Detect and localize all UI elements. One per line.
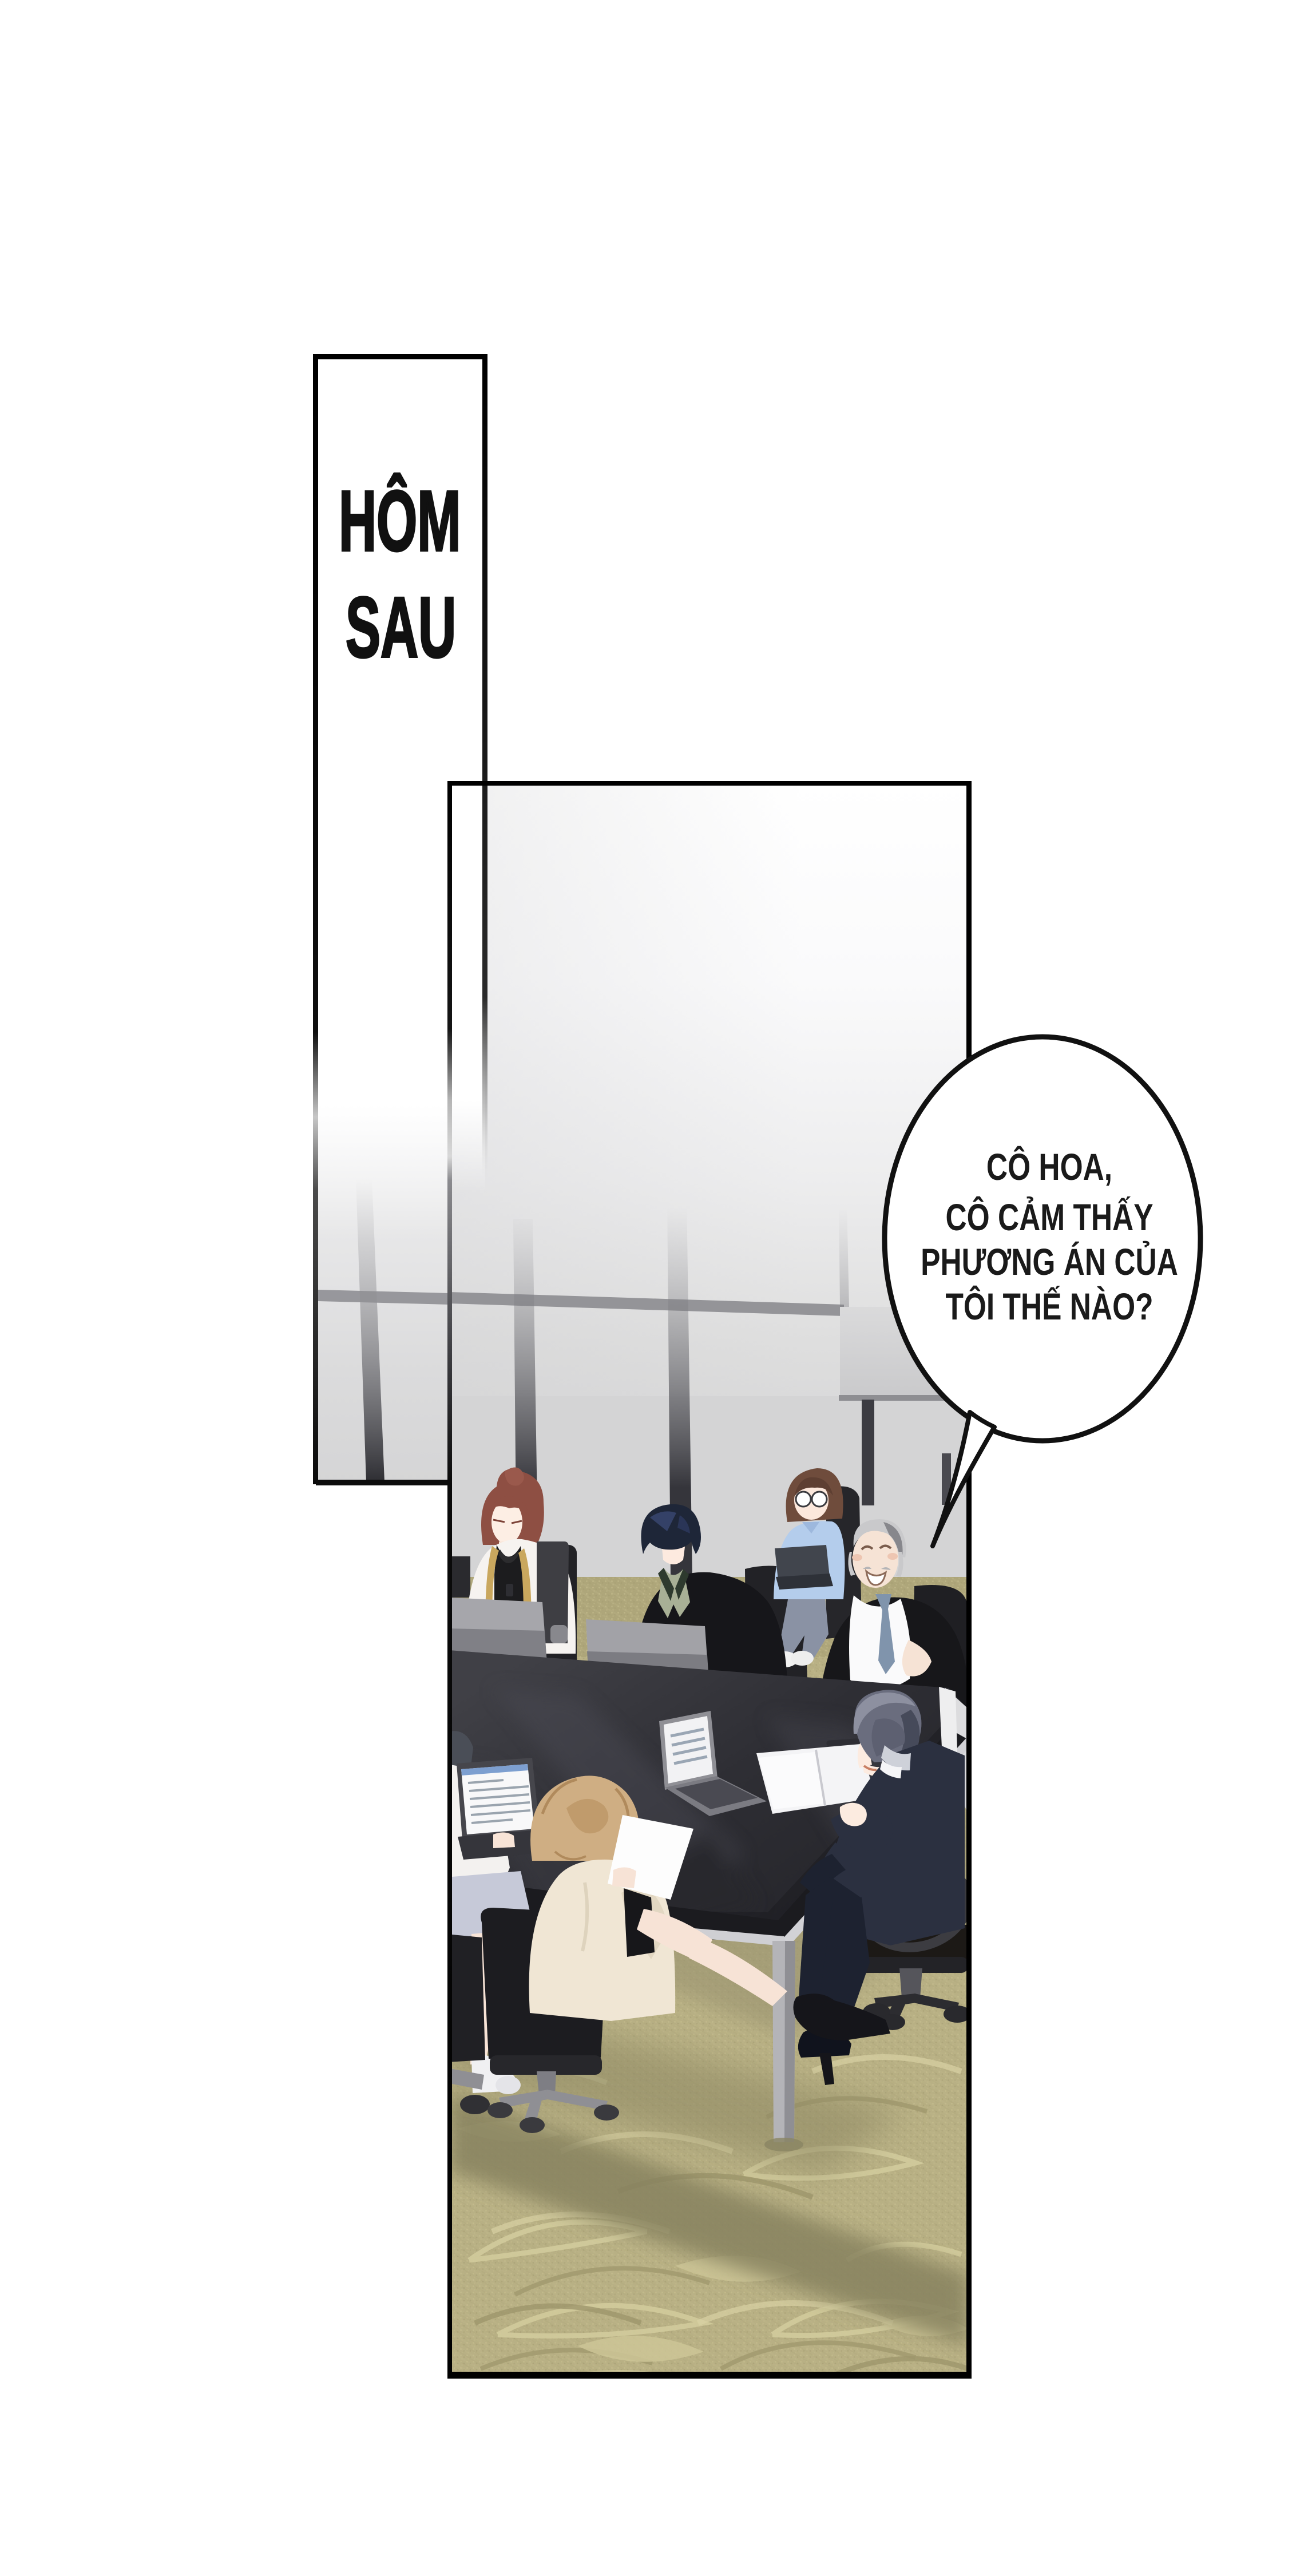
svg-text:PHƯƠNG ÁN CỦA: PHƯƠNG ÁN CỦA <box>921 1241 1178 1283</box>
svg-text:SAU: SAU <box>346 580 456 676</box>
svg-text:CÔ HOA,: CÔ HOA, <box>986 1146 1112 1188</box>
svg-text:TÔI THẾ NÀO?: TÔI THẾ NÀO? <box>945 1285 1153 1328</box>
svg-text:CÔ CẢM THẤY: CÔ CẢM THẤY <box>945 1196 1153 1239</box>
svg-text:HÔM: HÔM <box>339 473 461 569</box>
